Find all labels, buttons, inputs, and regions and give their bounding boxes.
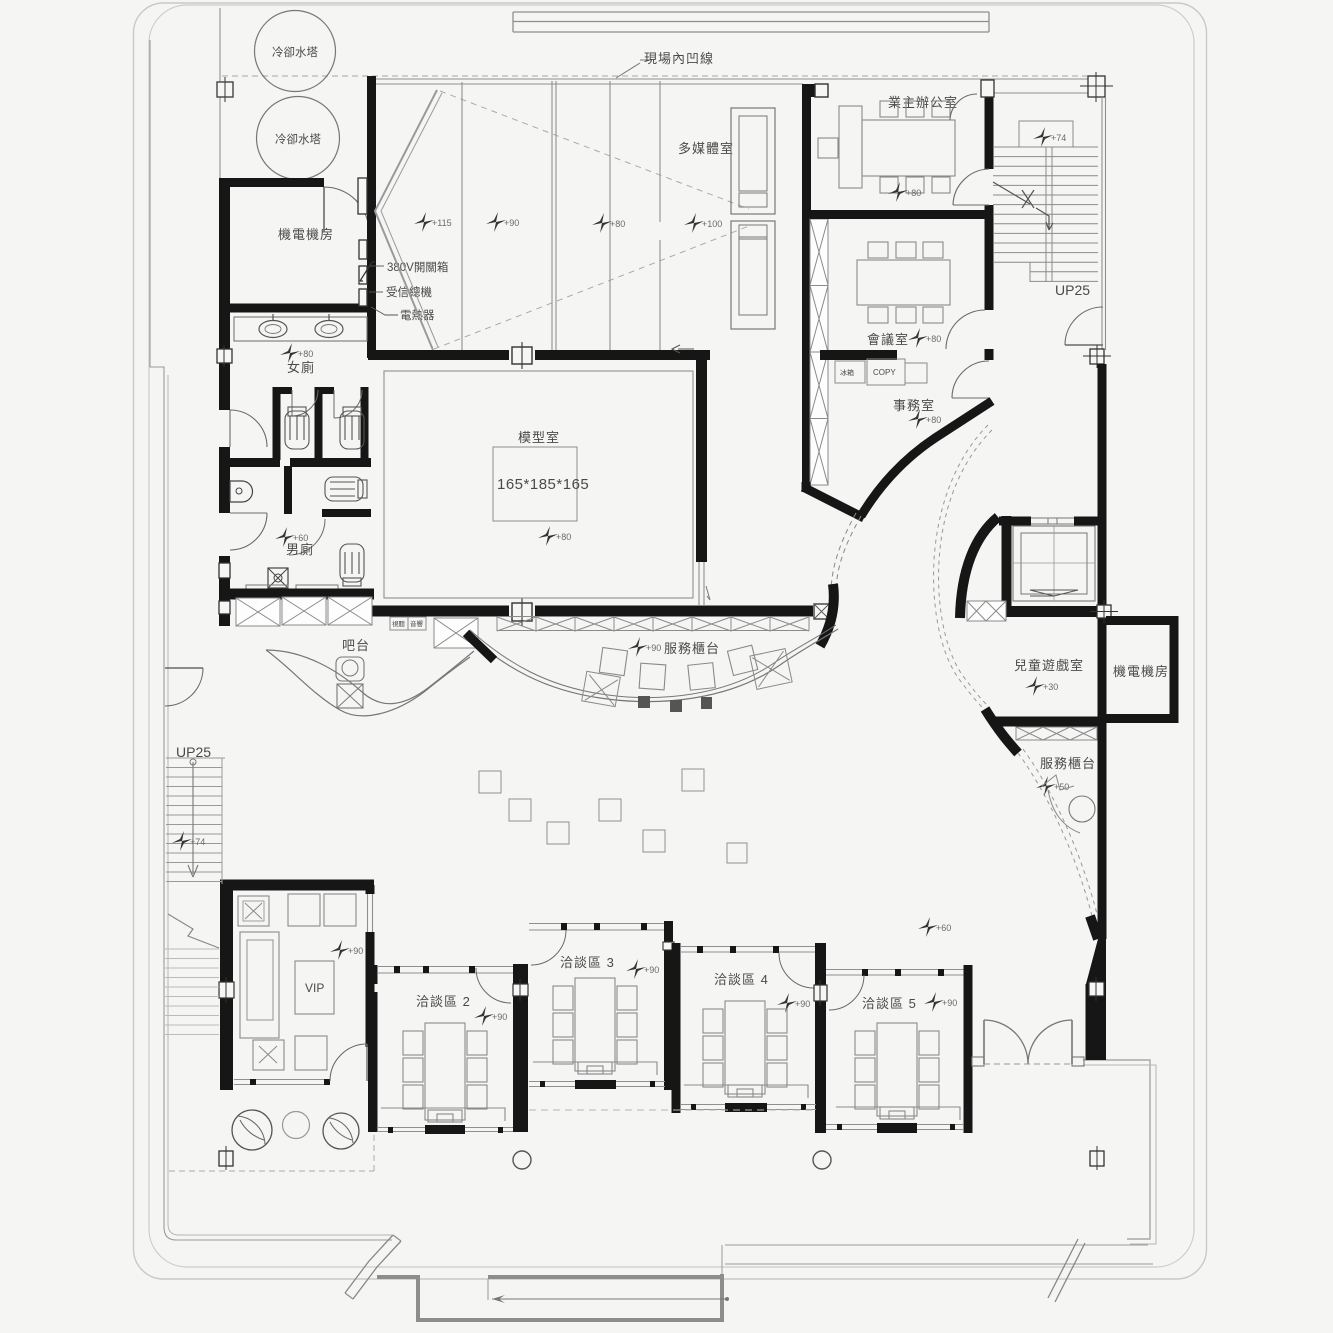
svg-text:冷卻水塔: 冷卻水塔 [275, 133, 321, 146]
svg-text:視聽: 視聽 [392, 619, 406, 628]
svg-text:機電機房: 機電機房 [278, 227, 334, 242]
svg-text:+80: +80 [926, 334, 941, 344]
svg-text:現場內凹線: 現場內凹線 [644, 51, 714, 66]
svg-text:洽談區 3: 洽談區 3 [560, 955, 615, 970]
svg-text:+80: +80 [556, 532, 571, 542]
svg-text:+80: +80 [610, 219, 625, 229]
svg-text:+115: +115 [432, 218, 452, 228]
svg-text:多媒體室: 多媒體室 [678, 141, 734, 156]
svg-text:男廁: 男廁 [286, 542, 314, 557]
svg-text:+90: +90 [504, 218, 519, 228]
svg-text:兒童遊戲室: 兒童遊戲室 [1014, 658, 1084, 673]
svg-text:VIP: VIP [305, 981, 324, 995]
svg-text:+90: +90 [644, 965, 659, 975]
svg-text:冷卻水塔: 冷卻水塔 [272, 46, 318, 59]
svg-text:COPY: COPY [873, 368, 896, 377]
svg-text:+74: +74 [190, 837, 205, 847]
svg-text:+50: +50 [1054, 782, 1069, 792]
svg-text:165*185*165: 165*185*165 [497, 476, 589, 493]
svg-text:女廁: 女廁 [287, 360, 315, 375]
svg-text:洽談區 5: 洽談區 5 [862, 996, 917, 1011]
svg-text:會議室: 會議室 [867, 332, 909, 347]
svg-text:+90: +90 [646, 643, 661, 653]
svg-text:+100: +100 [702, 219, 722, 229]
svg-text:服務櫃台: 服務櫃台 [1040, 756, 1096, 771]
svg-text:+90: +90 [348, 946, 363, 956]
svg-text:機電機房: 機電機房 [1113, 664, 1169, 679]
svg-text:+80: +80 [906, 188, 921, 198]
svg-text:洽談區 4: 洽談區 4 [714, 972, 769, 987]
svg-text:洽談區 2: 洽談區 2 [416, 994, 471, 1009]
svg-text:音響: 音響 [410, 619, 424, 628]
svg-text:服務櫃台: 服務櫃台 [664, 641, 720, 656]
svg-text:+60: +60 [936, 923, 951, 933]
svg-text:事務室: 事務室 [893, 398, 935, 413]
svg-text:+74: +74 [1051, 133, 1066, 143]
svg-text:模型室: 模型室 [518, 430, 560, 445]
svg-text:吧台: 吧台 [342, 638, 370, 653]
svg-text:+90: +90 [942, 998, 957, 1008]
svg-text:+90: +90 [795, 999, 810, 1009]
svg-text:UP25: UP25 [1055, 282, 1090, 298]
svg-text:+80: +80 [298, 349, 313, 359]
svg-text:UP25: UP25 [176, 744, 211, 760]
svg-text:+80: +80 [926, 415, 941, 425]
svg-text:+30: +30 [1043, 682, 1058, 692]
svg-text:冰箱: 冰箱 [840, 368, 854, 377]
svg-text:+90: +90 [492, 1012, 507, 1022]
